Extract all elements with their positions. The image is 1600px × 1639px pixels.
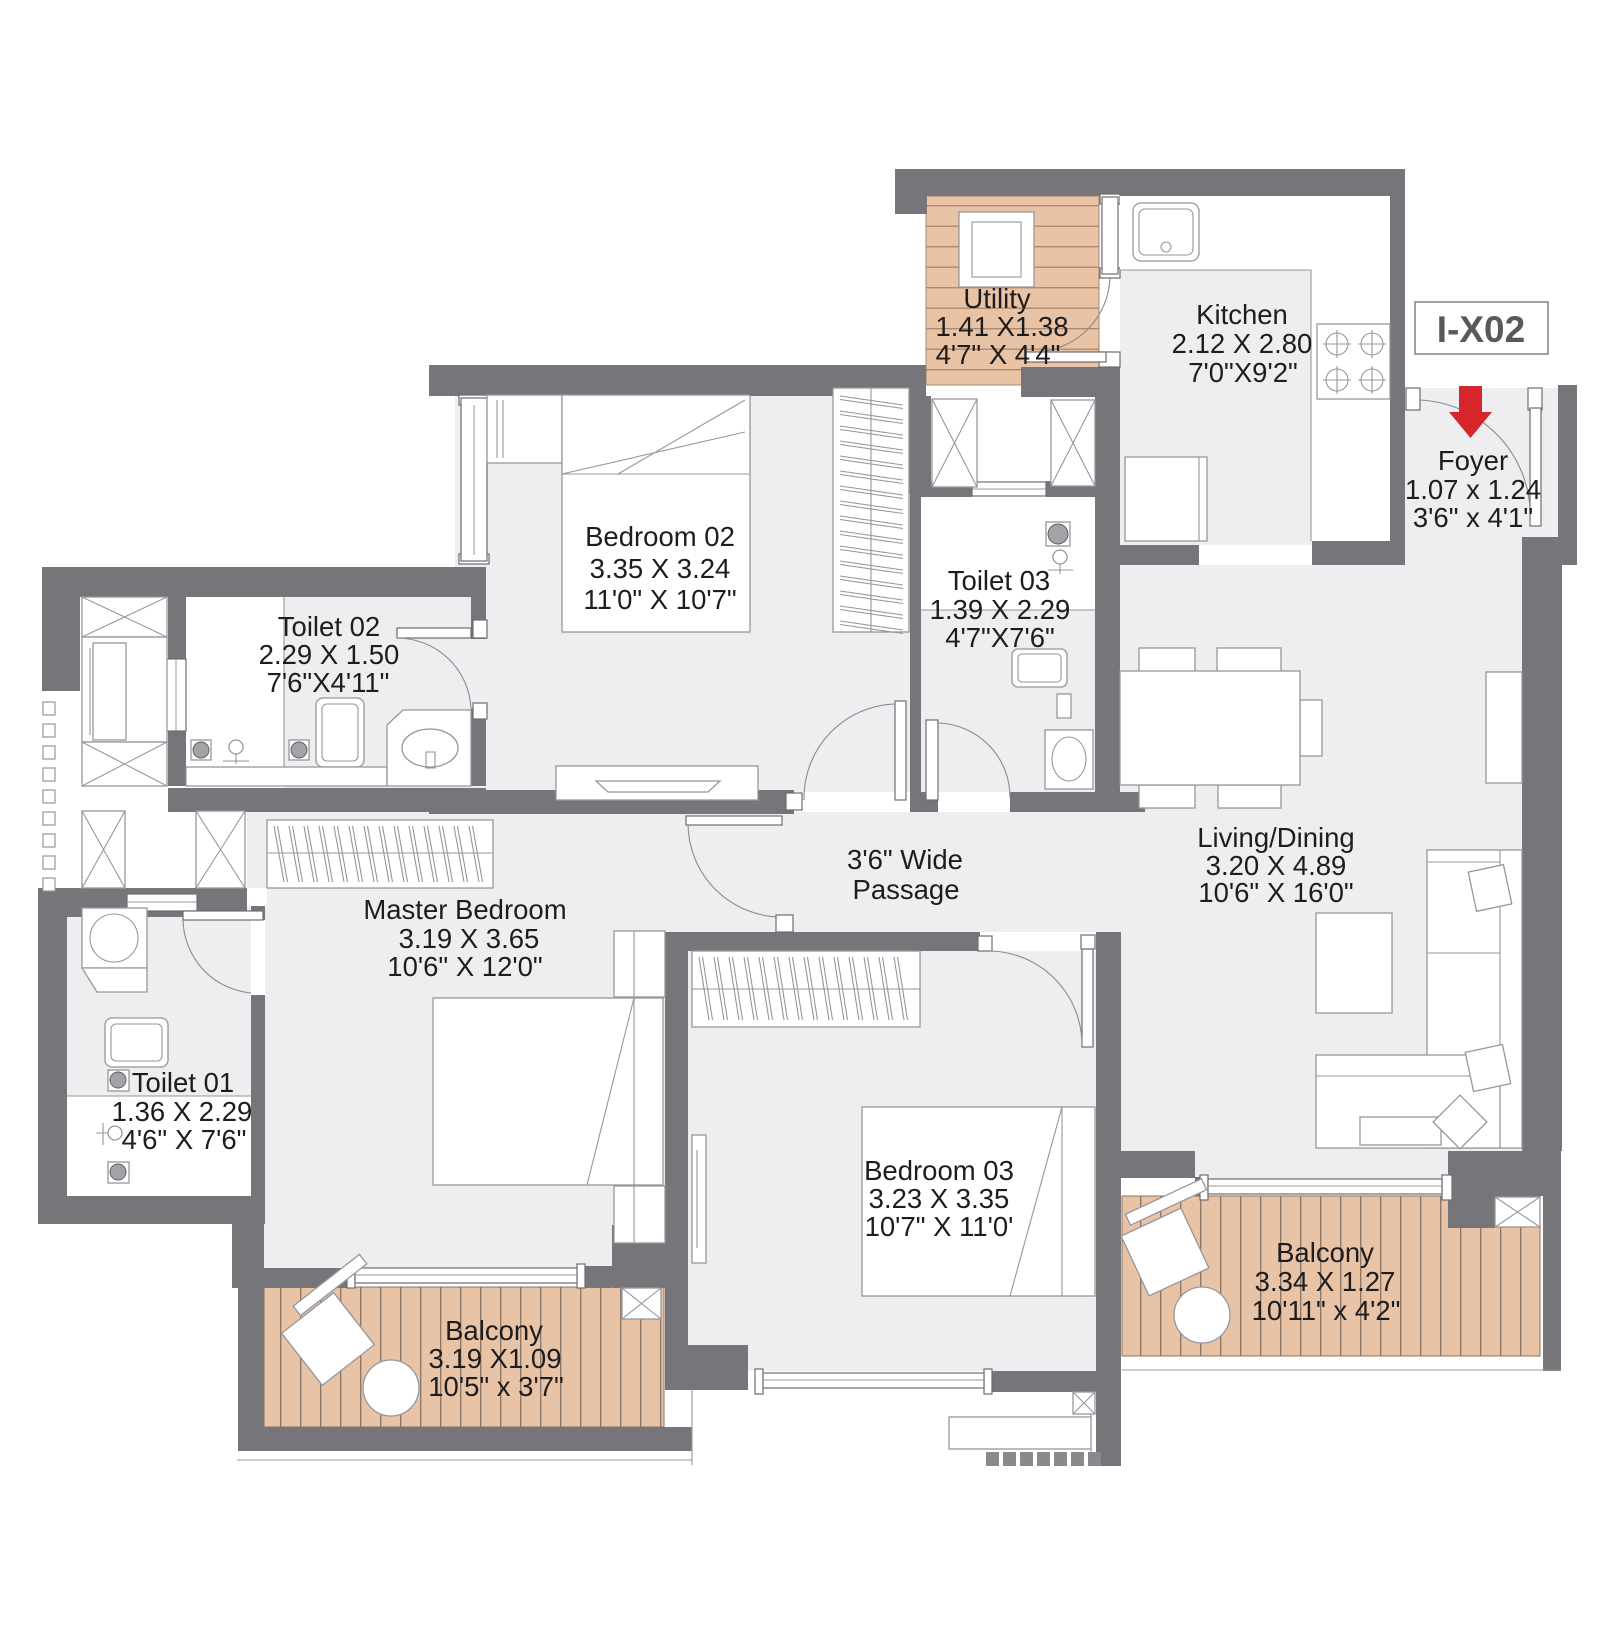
svg-text:4'7"X7'6": 4'7"X7'6" [945, 622, 1055, 653]
svg-text:Master Bedroom: Master Bedroom [363, 894, 566, 925]
svg-text:3.23 X 3.35: 3.23 X 3.35 [869, 1183, 1010, 1214]
svg-text:1.07 x 1.24: 1.07 x 1.24 [1405, 474, 1541, 505]
svg-text:1.41 X1.38: 1.41 X1.38 [935, 311, 1068, 342]
svg-text:Utility: Utility [963, 283, 1030, 314]
svg-text:Toilet 01: Toilet 01 [132, 1067, 234, 1098]
svg-text:1.39 X 2.29: 1.39 X 2.29 [930, 594, 1071, 625]
svg-text:Living/Dining: Living/Dining [1197, 822, 1354, 853]
svg-text:2.12 X 2.80: 2.12 X 2.80 [1172, 328, 1313, 359]
svg-text:Foyer: Foyer [1438, 445, 1508, 476]
svg-text:Toilet 03: Toilet 03 [948, 565, 1050, 596]
svg-text:3.19 X1.09: 3.19 X1.09 [428, 1343, 561, 1374]
svg-text:10'5" x 3'7": 10'5" x 3'7" [428, 1371, 564, 1402]
svg-text:10'6" X 12'0": 10'6" X 12'0" [387, 951, 542, 982]
svg-text:Kitchen: Kitchen [1196, 299, 1288, 330]
svg-text:Toilet 02: Toilet 02 [278, 611, 380, 642]
svg-text:11'0" X 10'7": 11'0" X 10'7" [583, 584, 736, 615]
svg-text:Balcony: Balcony [1276, 1237, 1374, 1268]
svg-text:I-X02: I-X02 [1437, 309, 1525, 350]
svg-text:10'7" X 11'0': 10'7" X 11'0' [865, 1211, 1014, 1242]
svg-text:3.34 X 1.27: 3.34 X 1.27 [1255, 1266, 1396, 1297]
svg-text:Balcony: Balcony [445, 1315, 543, 1346]
svg-text:4'6" X 7'6": 4'6" X 7'6" [122, 1124, 247, 1155]
svg-text:Bedroom 02: Bedroom 02 [585, 521, 735, 552]
svg-text:4'7" X 4'4": 4'7" X 4'4" [936, 339, 1061, 370]
svg-text:3.19 X 3.65: 3.19 X 3.65 [399, 923, 540, 954]
svg-text:3'6" Wide: 3'6" Wide [847, 844, 963, 875]
svg-text:7'6"X4'11": 7'6"X4'11" [267, 667, 390, 698]
svg-text:2.29 X 1.50: 2.29 X 1.50 [259, 639, 400, 670]
svg-text:10'11" x 4'2": 10'11" x 4'2" [1252, 1295, 1401, 1326]
svg-text:3.35 X 3.24: 3.35 X 3.24 [590, 553, 731, 584]
svg-text:7'0"X9'2": 7'0"X9'2" [1188, 357, 1298, 388]
svg-text:Bedroom 03: Bedroom 03 [864, 1155, 1014, 1186]
svg-text:Passage: Passage [852, 874, 959, 905]
svg-text:3'6" x 4'1": 3'6" x 4'1" [1413, 502, 1533, 533]
svg-text:10'6" X 16'0": 10'6" X 16'0" [1198, 877, 1353, 908]
svg-text:1.36 X 2.29: 1.36 X 2.29 [112, 1096, 253, 1127]
